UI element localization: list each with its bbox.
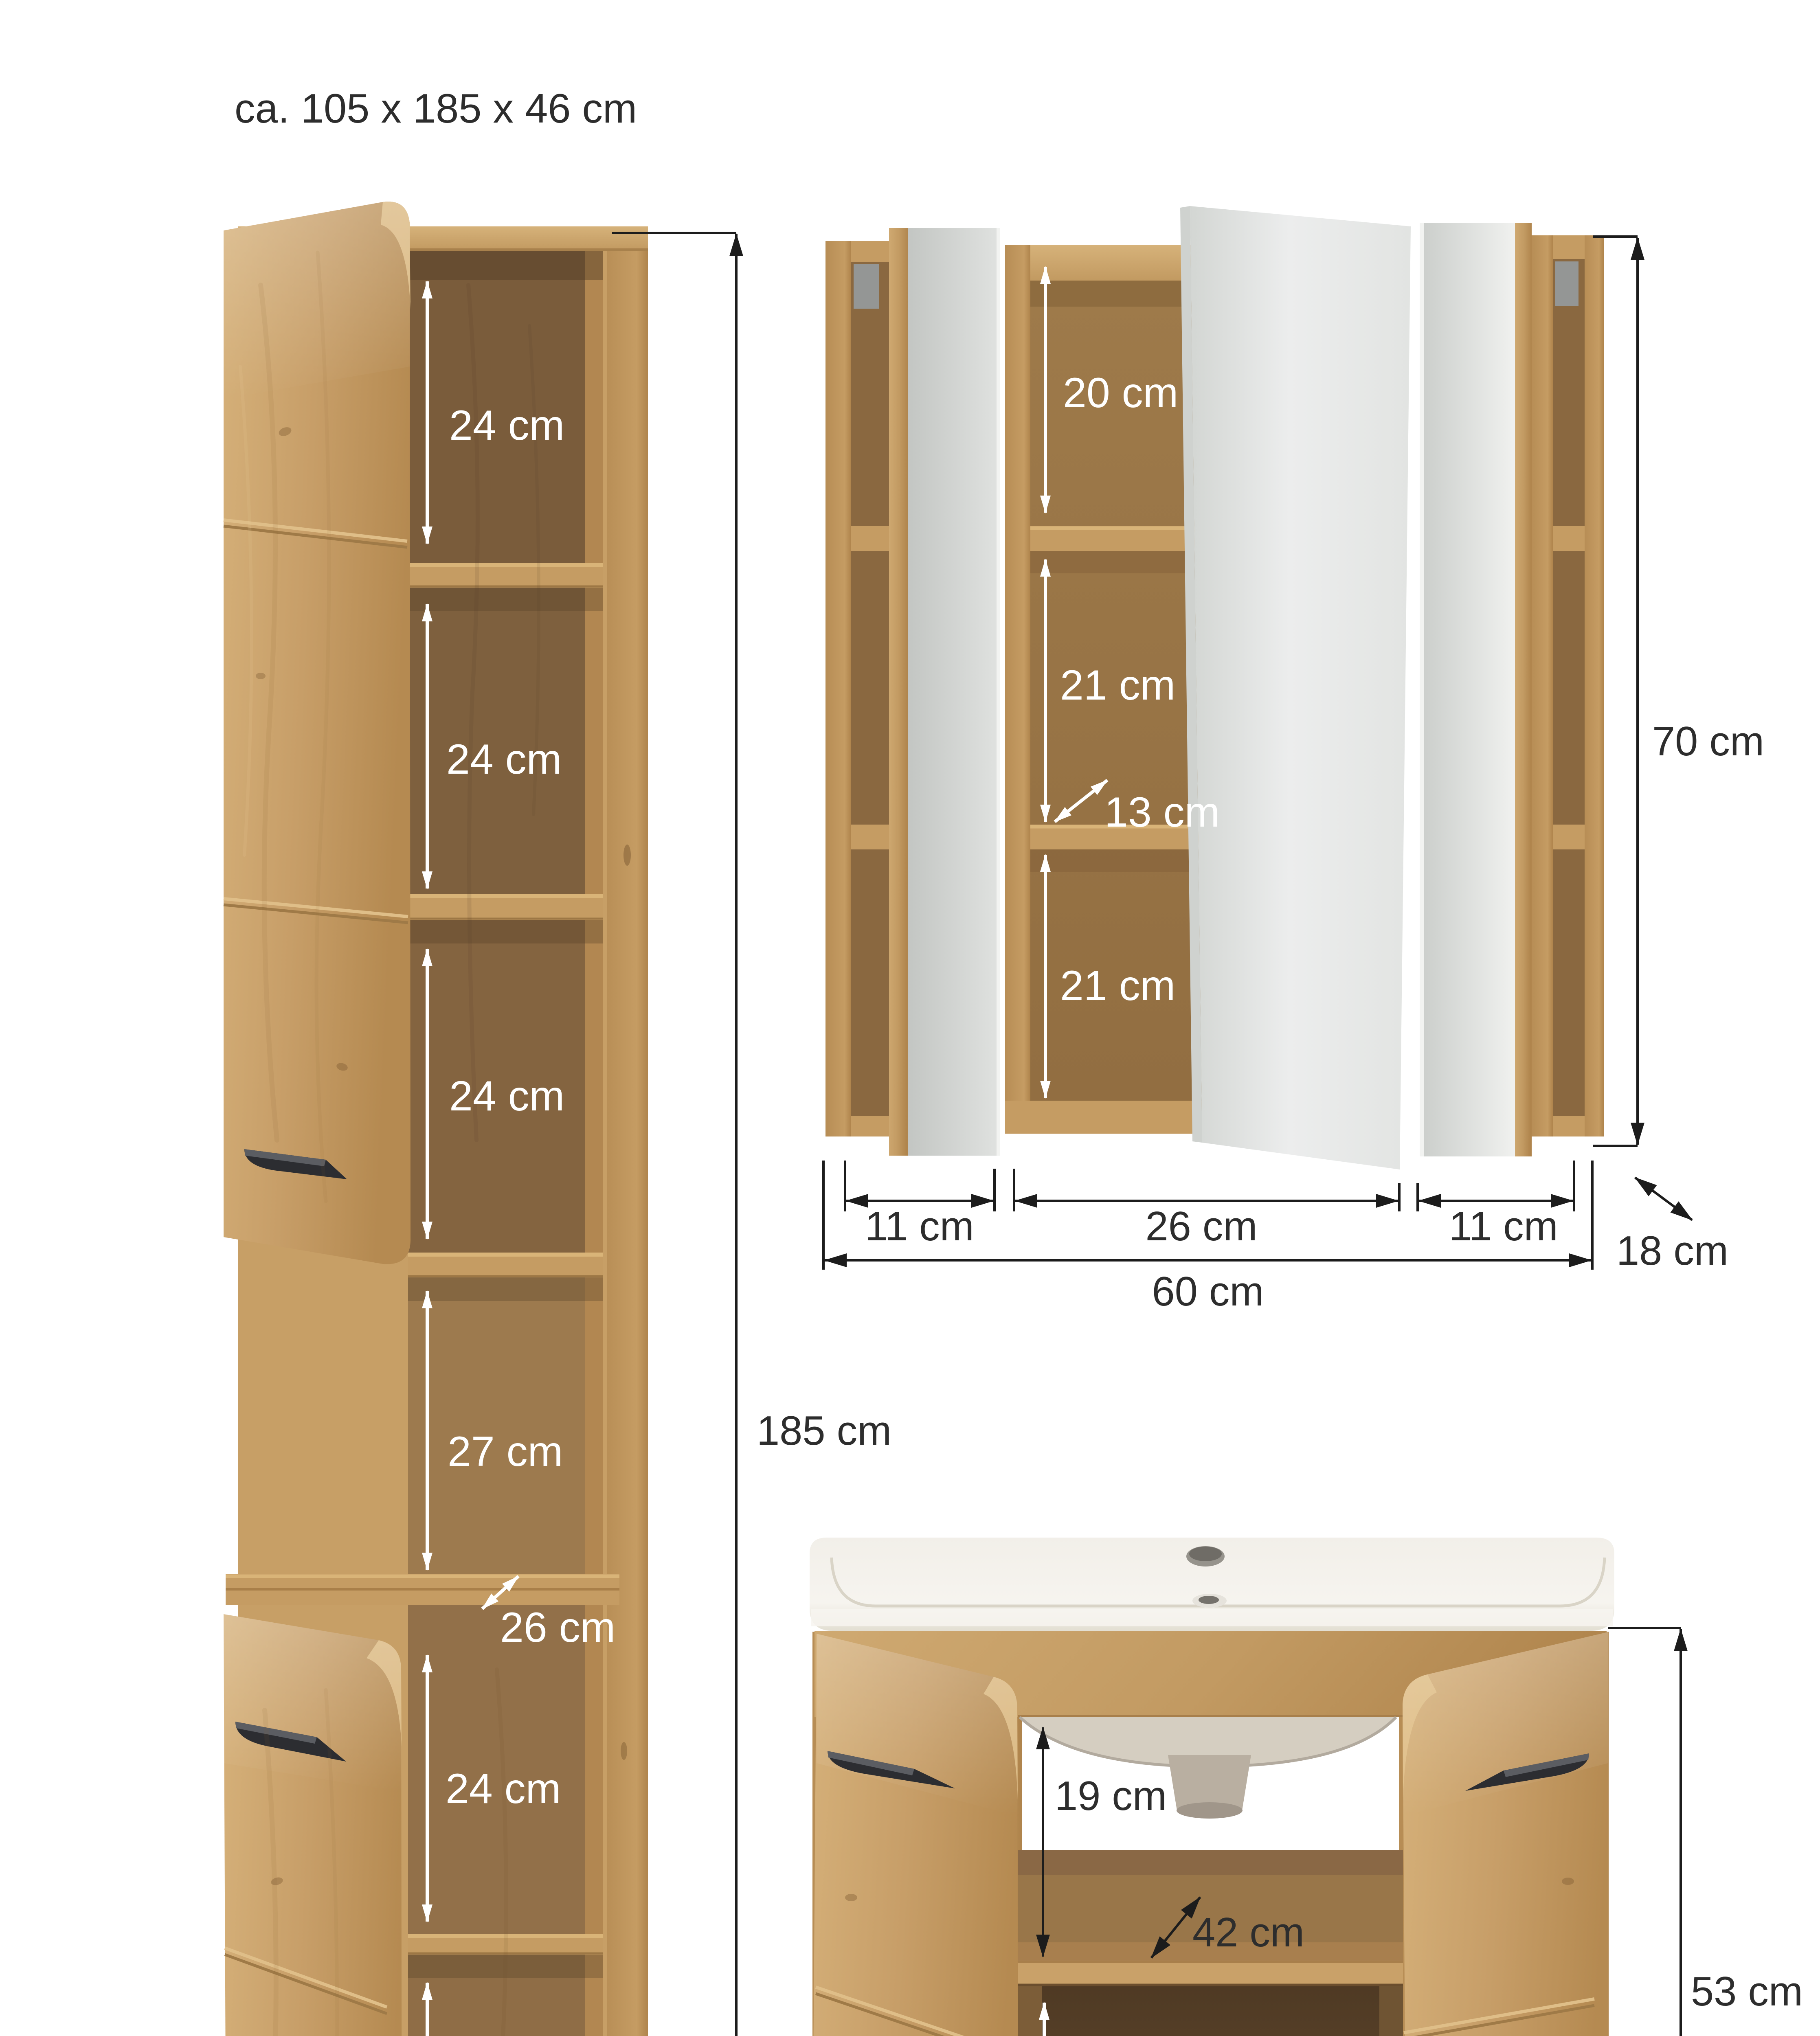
svg-text:21 cm: 21 cm <box>1060 662 1175 709</box>
svg-text:11 cm: 11 cm <box>1449 1204 1558 1249</box>
svg-text:21 cm: 21 cm <box>1060 962 1175 1009</box>
svg-text:26 cm: 26 cm <box>500 1604 615 1651</box>
svg-text:18 cm: 18 cm <box>1616 1228 1728 1274</box>
svg-text:24 cm: 24 cm <box>446 1765 561 1812</box>
svg-text:53 cm: 53 cm <box>1691 1969 1803 2014</box>
svg-text:24 cm: 24 cm <box>446 736 562 783</box>
svg-text:24 cm: 24 cm <box>449 402 564 449</box>
svg-text:19 cm: 19 cm <box>1055 1773 1167 1819</box>
svg-text:26 cm: 26 cm <box>1145 1204 1257 1249</box>
svg-text:13 cm: 13 cm <box>1104 789 1220 836</box>
svg-text:24 cm: 24 cm <box>449 1073 564 1120</box>
svg-text:42 cm: 42 cm <box>1192 1910 1304 1955</box>
svg-text:11 cm: 11 cm <box>865 1204 974 1249</box>
svg-text:27 cm: 27 cm <box>448 1428 563 1475</box>
svg-text:70 cm: 70 cm <box>1652 719 1764 764</box>
svg-text:ca. 105 x 185 x 46 cm: ca. 105 x 185 x 46 cm <box>235 86 637 132</box>
svg-text:60 cm: 60 cm <box>1152 1269 1264 1314</box>
svg-text:185 cm: 185 cm <box>757 1408 891 1454</box>
svg-text:20 cm: 20 cm <box>1063 369 1178 417</box>
